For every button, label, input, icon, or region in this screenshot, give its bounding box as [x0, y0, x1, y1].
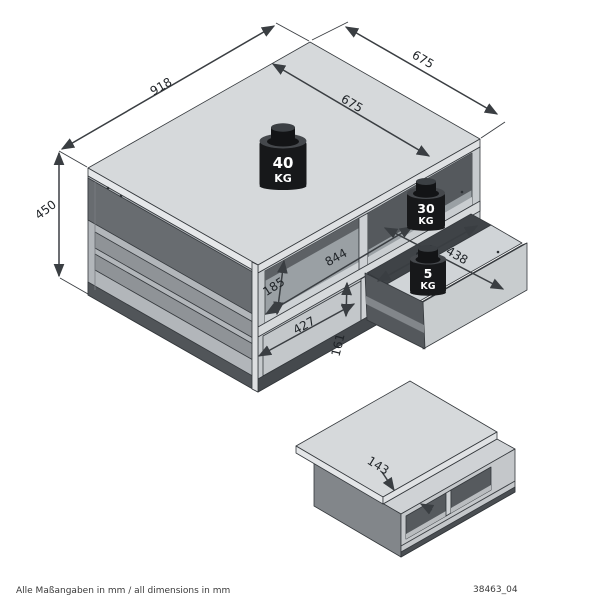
weight-top-value: 40: [273, 154, 294, 172]
weight-shelf-unit: KG: [418, 216, 433, 227]
fitting-dot: [120, 195, 123, 198]
detail-view: 143: [296, 381, 515, 557]
main-view: 918 675 675 450 185 844 427 161 400 438 …: [32, 22, 527, 392]
dim-label-height: 450: [32, 197, 59, 222]
dim-line-161: [346, 283, 347, 316]
dimensions-note: Alle Maßangaben in mm / all dimensions i…: [16, 586, 230, 596]
dim-label-width: 918: [148, 75, 175, 99]
detail-divider: [446, 490, 451, 516]
handle-dot: [497, 251, 500, 254]
niche-divider: [359, 213, 368, 270]
dim-label-depth: 675: [410, 48, 437, 72]
furniture-dimension-diagram: 918 675 675 450 185 844 427 161 400 438 …: [0, 0, 600, 600]
fitting-dot: [107, 187, 110, 190]
weight-drawer-unit: KG: [420, 281, 435, 292]
technical-drawing-canvas: 918 675 675 450 185 844 427 161 400 438 …: [0, 0, 600, 600]
footer: Alle Maßangaben in mm / all dimensions i…: [16, 585, 518, 596]
weight-drawer-value: 5: [424, 266, 433, 281]
weight-shelf-value: 30: [417, 201, 435, 216]
shelf-pin-dot: [461, 191, 464, 194]
drawing-code: 38463_04: [473, 585, 518, 595]
weight-top-unit: KG: [274, 172, 292, 185]
front-corner-edge: [252, 262, 258, 392]
